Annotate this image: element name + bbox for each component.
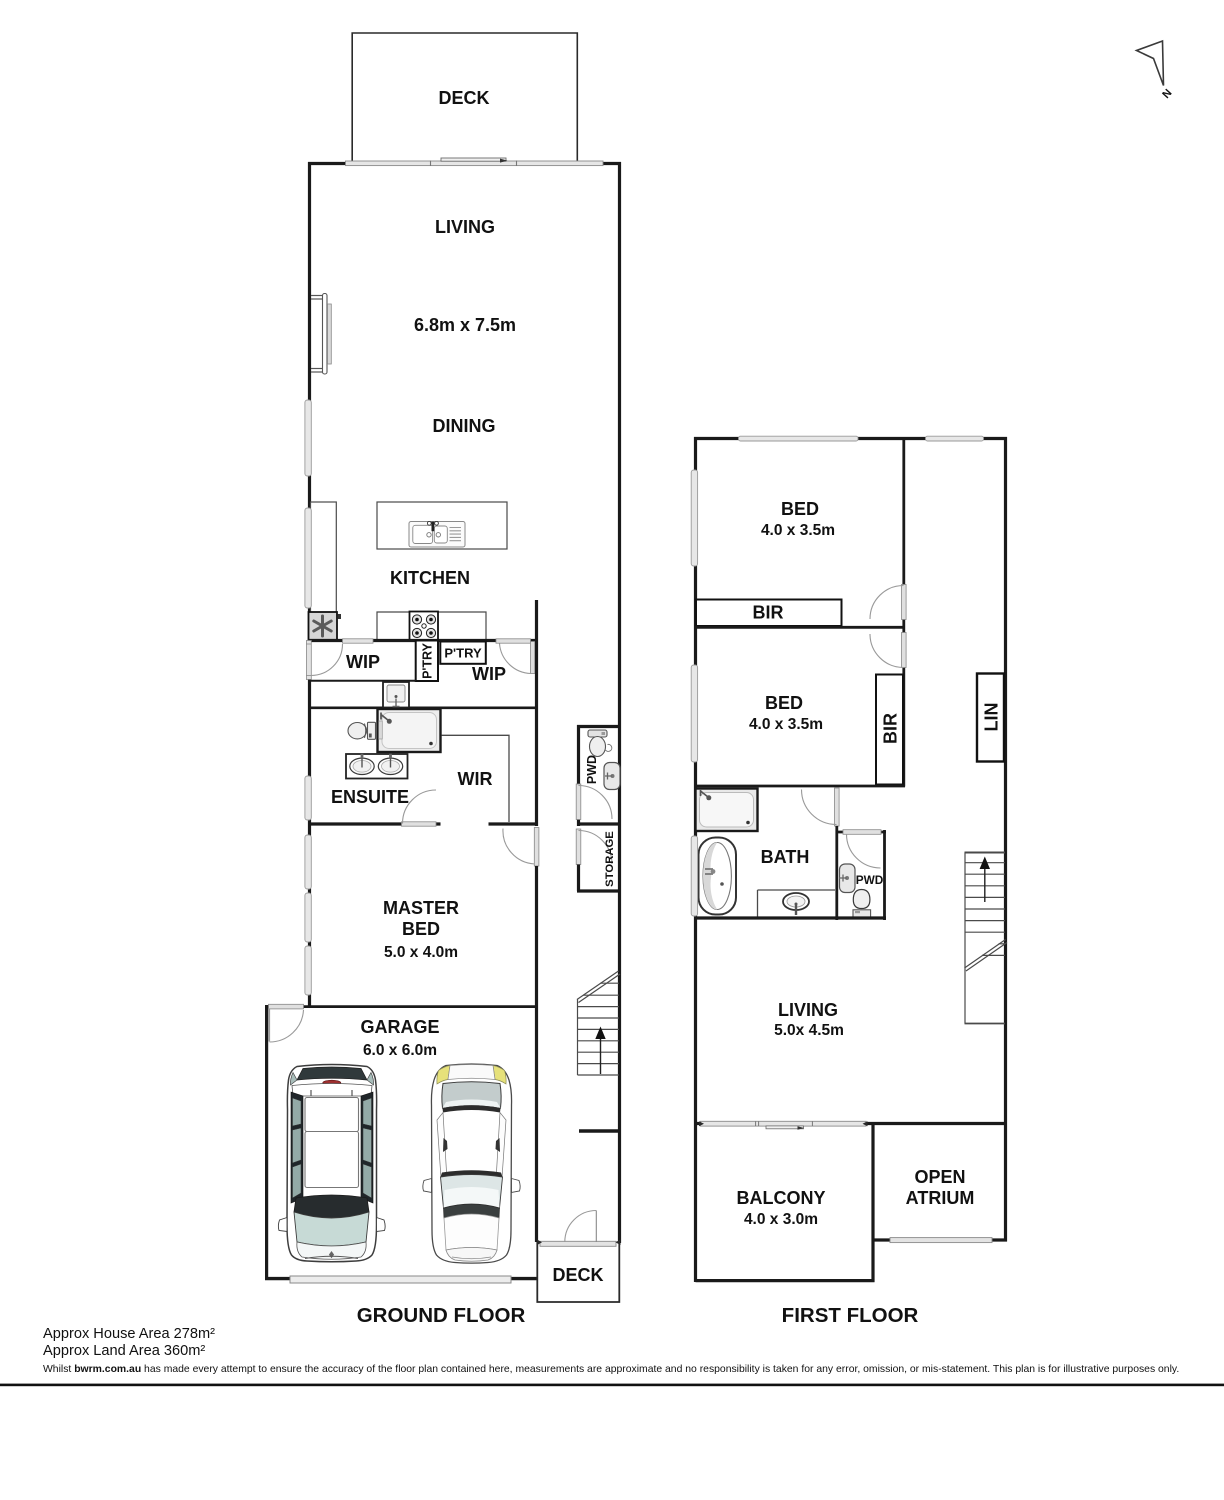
svg-text:DINING: DINING: [433, 416, 496, 436]
svg-text:MASTER: MASTER: [383, 898, 459, 918]
svg-text:WIP: WIP: [346, 652, 380, 672]
svg-text:4.0 x 3.0m: 4.0 x 3.0m: [744, 1211, 818, 1228]
svg-text:4.0 x 3.5m: 4.0 x 3.5m: [749, 716, 823, 733]
svg-text:5.0 x 4.0m: 5.0 x 4.0m: [384, 944, 458, 961]
svg-text:BIR: BIR: [753, 603, 784, 623]
svg-text:DECK: DECK: [552, 1265, 603, 1285]
svg-text:BATH: BATH: [761, 847, 810, 867]
svg-text:6.8m x 7.5m: 6.8m x 7.5m: [414, 315, 516, 335]
svg-text:OPEN: OPEN: [914, 1167, 965, 1187]
svg-text:WIR: WIR: [458, 769, 493, 789]
svg-text:Approx House Area 278m²: Approx House Area 278m²: [43, 1326, 215, 1342]
svg-text:PWD: PWD: [585, 755, 599, 784]
svg-text:STORAGE: STORAGE: [604, 831, 616, 887]
svg-text:BED: BED: [765, 693, 803, 713]
svg-text:WIP: WIP: [472, 664, 506, 684]
svg-text:P'TRY: P'TRY: [444, 646, 482, 661]
svg-text:P'TRY: P'TRY: [421, 642, 435, 679]
svg-text:LIN: LIN: [981, 703, 1001, 732]
svg-text:Whilst bwrm.com.au has made ev: Whilst bwrm.com.au has made every attemp…: [43, 1364, 1179, 1375]
svg-text:ENSUITE: ENSUITE: [331, 787, 409, 807]
svg-text:LIVING: LIVING: [778, 1000, 838, 1020]
svg-text:KITCHEN: KITCHEN: [390, 568, 470, 588]
svg-text:5.0x 4.5m: 5.0x 4.5m: [774, 1022, 844, 1039]
svg-text:BED: BED: [402, 919, 440, 939]
svg-text:GROUND FLOOR: GROUND FLOOR: [357, 1304, 526, 1327]
svg-text:4.0 x 3.5m: 4.0 x 3.5m: [761, 522, 835, 539]
svg-text:DECK: DECK: [438, 88, 489, 108]
svg-text:BALCONY: BALCONY: [737, 1188, 826, 1208]
svg-text:LIVING: LIVING: [435, 217, 495, 237]
svg-text:Approx Land Area 360m²: Approx Land Area 360m²: [43, 1343, 205, 1359]
svg-text:ATRIUM: ATRIUM: [906, 1188, 975, 1208]
svg-text:PWD: PWD: [856, 873, 884, 887]
svg-text:FIRST FLOOR: FIRST FLOOR: [782, 1304, 919, 1327]
svg-text:6.0 x 6.0m: 6.0 x 6.0m: [363, 1042, 437, 1059]
svg-text:BIR: BIR: [880, 713, 900, 744]
svg-text:BED: BED: [781, 499, 819, 519]
svg-text:GARAGE: GARAGE: [360, 1017, 439, 1037]
